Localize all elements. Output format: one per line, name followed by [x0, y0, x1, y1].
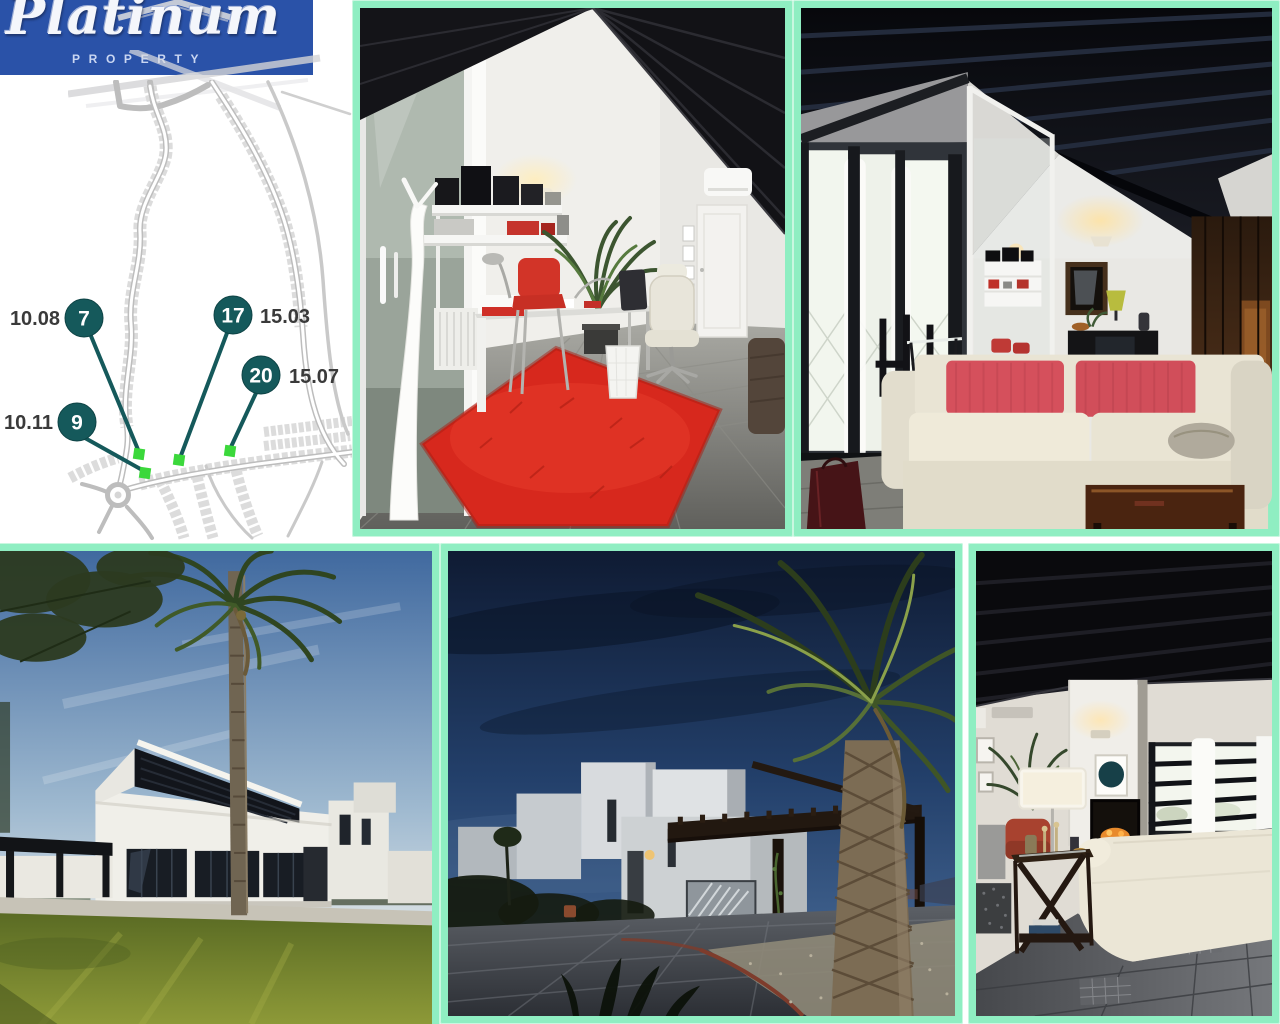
plot-badge-20: 20	[242, 356, 280, 394]
mosaic-inset	[1079, 976, 1131, 1005]
svg-text:9: 9	[71, 412, 83, 435]
cream-sofa	[1072, 829, 1272, 962]
plot-badge-17: 17	[214, 296, 252, 334]
photo-tile-living-room-1	[793, 0, 1280, 537]
svg-text:7: 7	[78, 308, 90, 331]
porch-light	[645, 850, 655, 860]
gray-throw	[1168, 423, 1235, 459]
plot-ref-labels: 10.08 10.11 15.03 15.07	[4, 306, 339, 434]
blue-book	[1029, 925, 1060, 933]
plot-marker-20	[224, 445, 236, 457]
waste-basket	[606, 346, 640, 398]
coffee-table	[1086, 485, 1245, 529]
photo-tile-villa-garden	[0, 543, 440, 1024]
paper-bag	[807, 459, 866, 529]
round-wall-art	[1096, 755, 1127, 795]
photo-living-room-lamp	[976, 551, 1272, 1016]
ottoman-throw	[748, 338, 785, 434]
back-wall-door	[697, 205, 747, 337]
monitor	[619, 269, 648, 311]
mirror	[1068, 264, 1105, 312]
radiator	[434, 308, 478, 370]
sheer-curtain	[1192, 738, 1216, 843]
photo-office-interior	[360, 8, 785, 529]
plot-ref-label-7: 10.08	[10, 308, 60, 330]
logo-brand-text: Platinum	[6, 0, 313, 47]
photo-villa-carport	[448, 551, 955, 1016]
back-shelf-unit	[984, 247, 1041, 306]
svg-text:20: 20	[249, 365, 272, 388]
door-handle	[380, 246, 386, 304]
garden-pergola	[0, 837, 113, 899]
plot-marker-17	[173, 454, 185, 466]
plot-ref-label-17: 15.03	[260, 306, 310, 328]
plot-ref-label-9: 10.11	[4, 412, 53, 434]
photo-tile-office	[352, 0, 793, 537]
site-plan-roundabout	[108, 485, 129, 506]
plot-badge-7: 7	[65, 299, 103, 337]
pebble-mat	[976, 883, 1011, 933]
photo-tile-living-room-2	[968, 543, 1280, 1024]
plot-ref-label-20: 15.07	[289, 366, 339, 388]
photo-villa-garden	[0, 551, 432, 1024]
louvered-garage	[687, 881, 756, 919]
plot-badges: 7 9 17 20	[58, 296, 280, 441]
red-cushion	[946, 361, 1064, 415]
plot-marker-9	[139, 467, 151, 479]
sheer-curtain	[1256, 736, 1272, 843]
plot-marker-7	[133, 448, 145, 460]
site-plan: 7 9 17 20 10.08 10.11 15.03 15.07	[0, 80, 352, 542]
wall-sconce	[1091, 730, 1111, 738]
metal-cabinet	[978, 825, 1005, 879]
air-conditioner	[704, 168, 752, 196]
plot-badge-9: 9	[58, 403, 96, 441]
lawn	[0, 913, 432, 1024]
window-band	[127, 849, 312, 897]
photo-living-room-red-cushions	[801, 8, 1272, 529]
photo-tile-villa-carport	[440, 543, 963, 1024]
svg-text:17: 17	[221, 305, 244, 328]
property-collage: Platinum PROPERTY	[0, 0, 1280, 1024]
red-cushion	[1076, 361, 1196, 417]
